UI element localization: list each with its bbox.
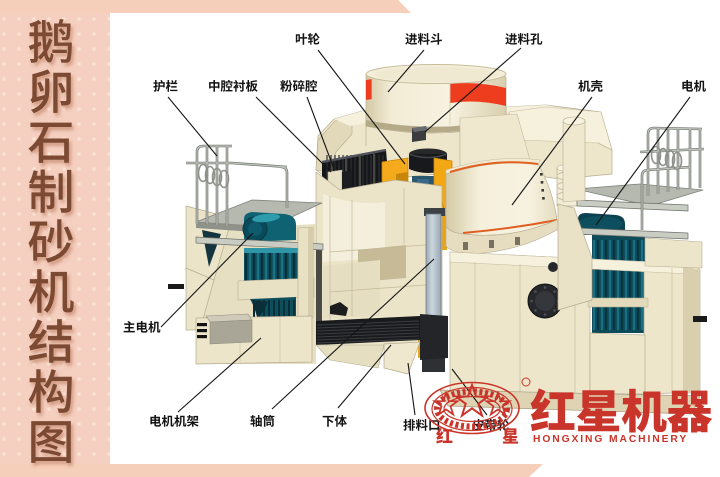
svg-text:HONGXING MACHINERY: HONGXING MACHINERY [533, 434, 688, 445]
